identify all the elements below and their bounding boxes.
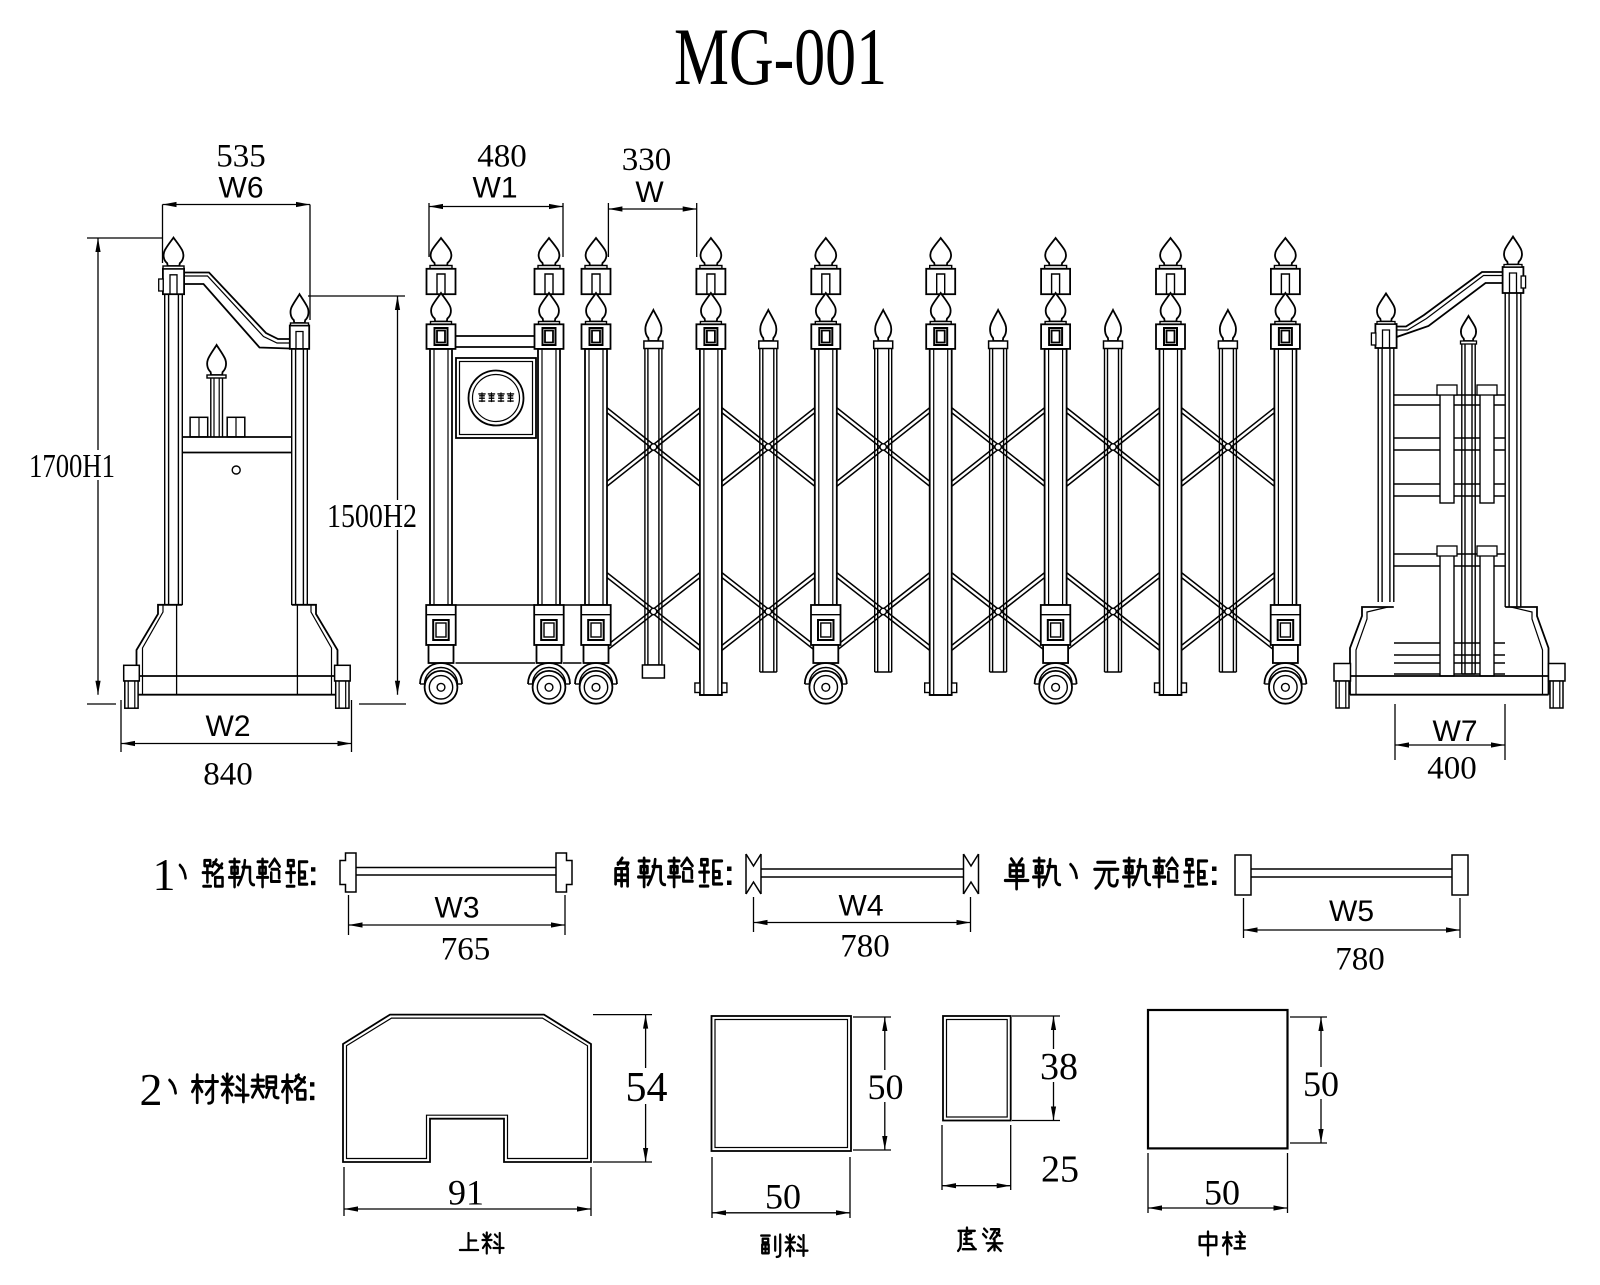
svg-text:50: 50 — [1303, 1064, 1339, 1104]
svg-text:W7: W7 — [1433, 715, 1478, 748]
svg-text:1700H1: 1700H1 — [29, 448, 115, 485]
svg-text:MG-001: MG-001 — [674, 11, 887, 102]
svg-text:W4: W4 — [839, 890, 884, 923]
svg-text:330: 330 — [622, 142, 672, 178]
svg-text:25: 25 — [1041, 1149, 1079, 1191]
svg-text:1: 1 — [153, 849, 176, 900]
svg-text:50: 50 — [1204, 1173, 1240, 1213]
svg-text:W5: W5 — [1329, 895, 1374, 928]
svg-text:W6: W6 — [219, 172, 264, 205]
svg-text:54: 54 — [626, 1065, 668, 1111]
svg-text:480: 480 — [477, 139, 527, 175]
svg-text:50: 50 — [868, 1067, 904, 1107]
svg-text:50: 50 — [765, 1177, 801, 1217]
svg-text:780: 780 — [1335, 942, 1385, 978]
svg-text:1500H2: 1500H2 — [327, 498, 417, 535]
svg-text:38: 38 — [1040, 1046, 1078, 1088]
svg-text:W: W — [635, 176, 664, 209]
svg-text:2: 2 — [140, 1064, 163, 1115]
svg-text:780: 780 — [840, 929, 890, 965]
svg-text:W3: W3 — [435, 892, 480, 925]
svg-text:W1: W1 — [473, 172, 518, 205]
svg-text:840: 840 — [203, 757, 253, 793]
svg-text:91: 91 — [448, 1173, 484, 1213]
svg-text:765: 765 — [441, 932, 491, 968]
svg-text:W2: W2 — [206, 710, 251, 743]
svg-text:535: 535 — [216, 139, 266, 175]
svg-text:400: 400 — [1427, 751, 1477, 787]
